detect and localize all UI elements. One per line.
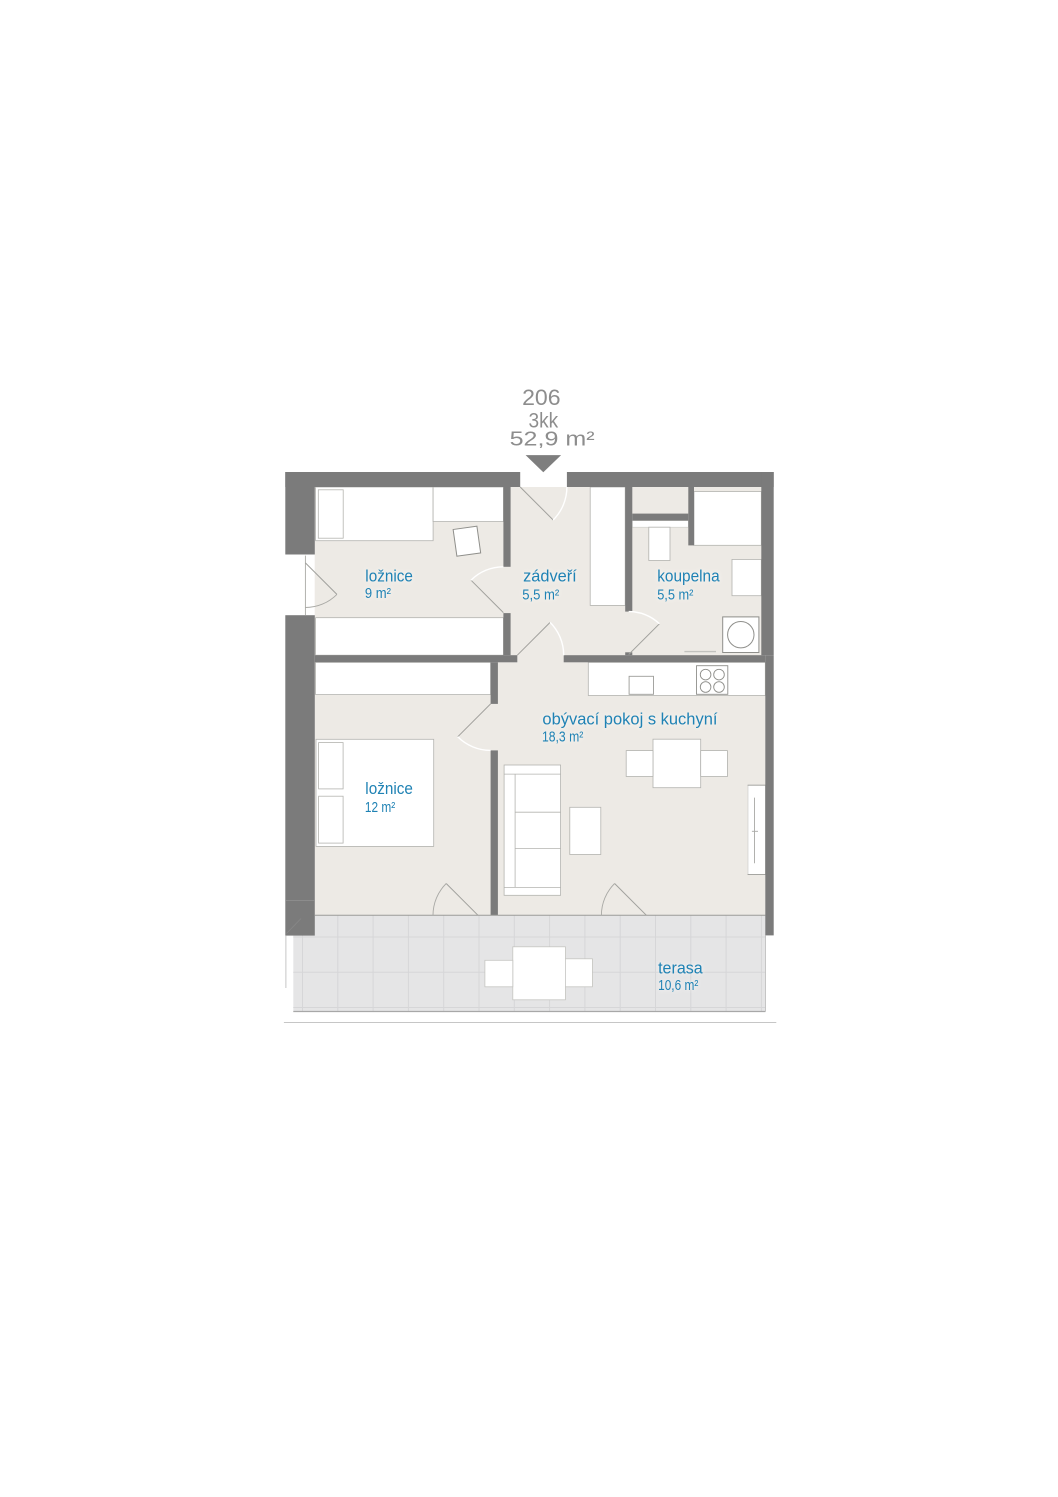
- svg-text:obývací pokoj s kuchyní: obývací pokoj s kuchyní: [542, 710, 718, 728]
- svg-text:12 m²: 12 m²: [365, 800, 395, 816]
- svg-text:5,5 m²: 5,5 m²: [522, 588, 559, 604]
- svg-text:koupelna: koupelna: [657, 567, 720, 585]
- svg-text:zádveří: zádveří: [523, 567, 577, 585]
- svg-text:10,6 m²: 10,6 m²: [658, 978, 698, 994]
- svg-text:ložnice: ložnice: [365, 568, 413, 586]
- svg-text:ložnice: ložnice: [365, 780, 413, 798]
- svg-text:9 m²: 9 m²: [365, 586, 391, 602]
- svg-text:5,5 m²: 5,5 m²: [657, 588, 693, 604]
- svg-text:52,9 m²: 52,9 m²: [510, 429, 595, 451]
- svg-text:206: 206: [522, 385, 561, 410]
- svg-text:18,3 m²: 18,3 m²: [542, 730, 583, 746]
- svg-text:terasa: terasa: [658, 959, 703, 977]
